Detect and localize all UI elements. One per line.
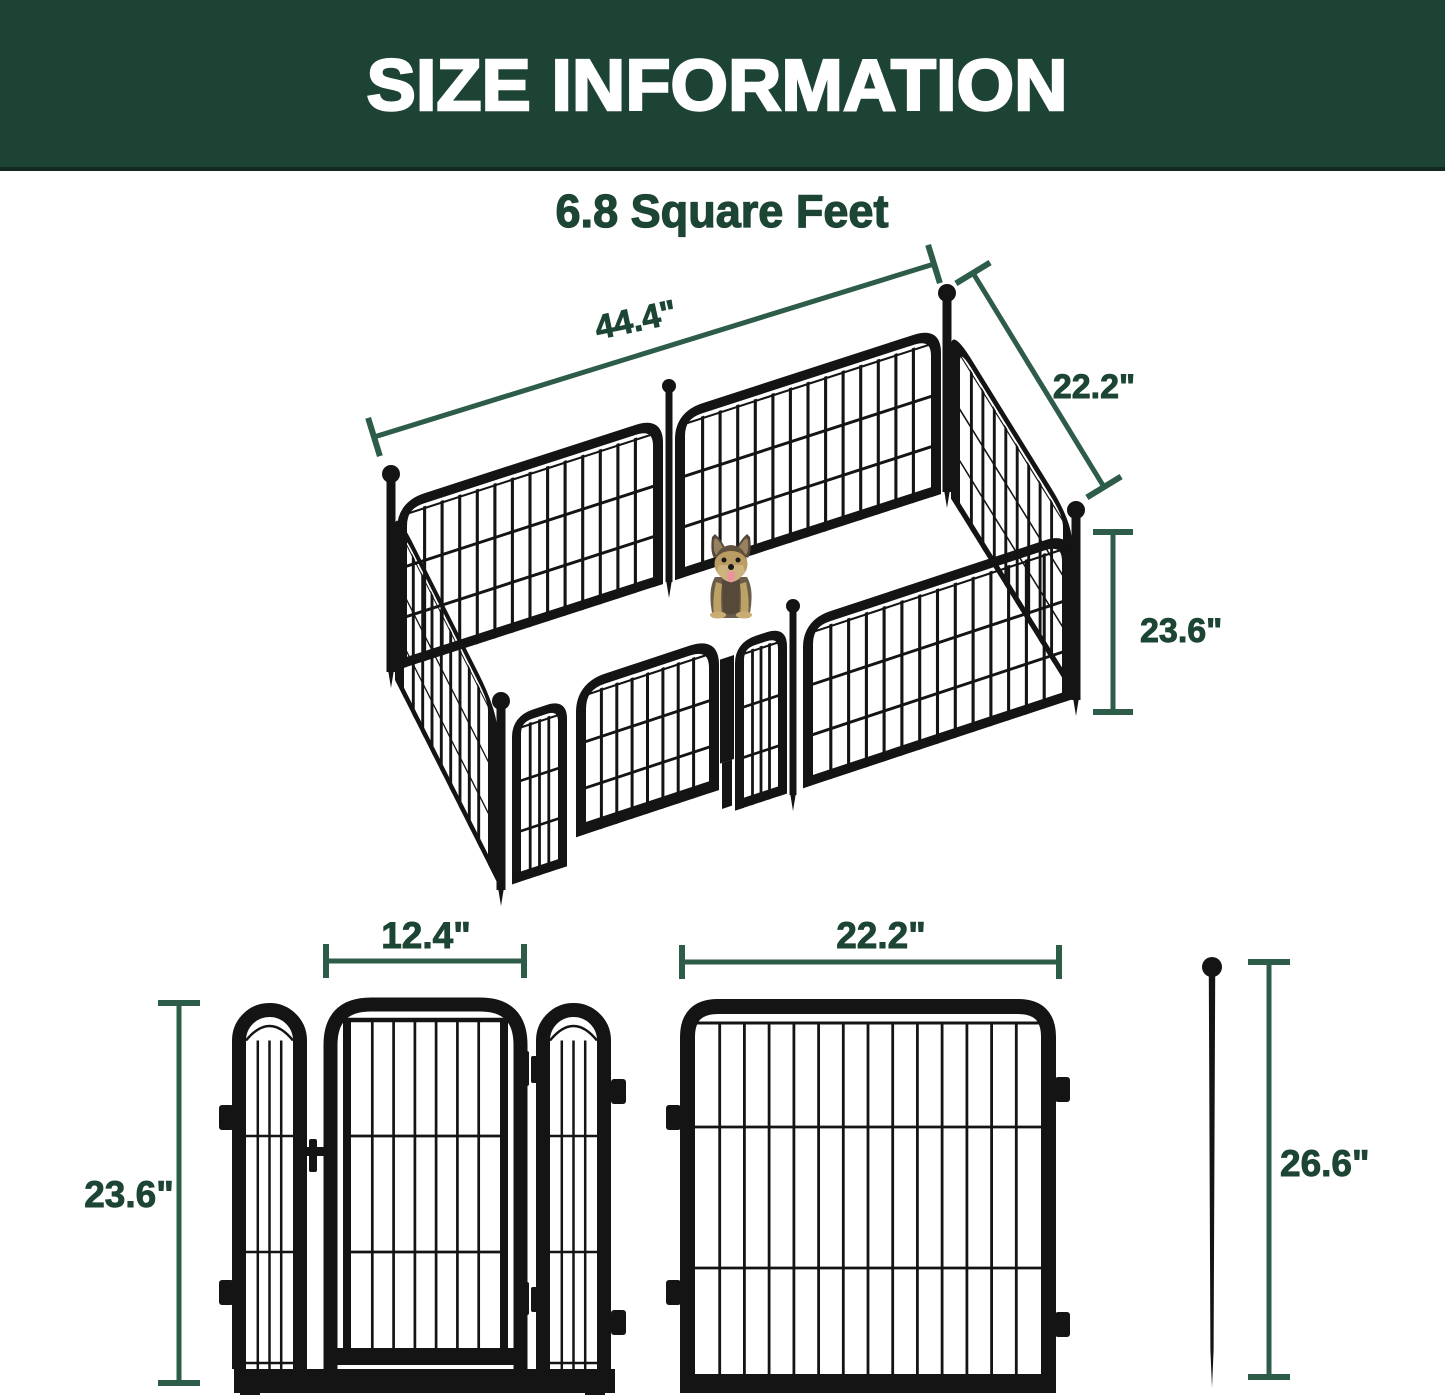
svg-text:12.4": 12.4" xyxy=(381,915,471,956)
svg-text:22.2": 22.2" xyxy=(836,915,926,956)
svg-text:SIZE INFORMATION: SIZE INFORMATION xyxy=(367,46,1068,126)
svg-text:6.8 Square Feet: 6.8 Square Feet xyxy=(556,185,889,237)
svg-text:22.2": 22.2" xyxy=(1053,368,1135,406)
svg-text:23.6": 23.6" xyxy=(84,1174,174,1215)
svg-text:26.6": 26.6" xyxy=(1280,1143,1370,1184)
svg-text:23.6": 23.6" xyxy=(1140,612,1222,650)
